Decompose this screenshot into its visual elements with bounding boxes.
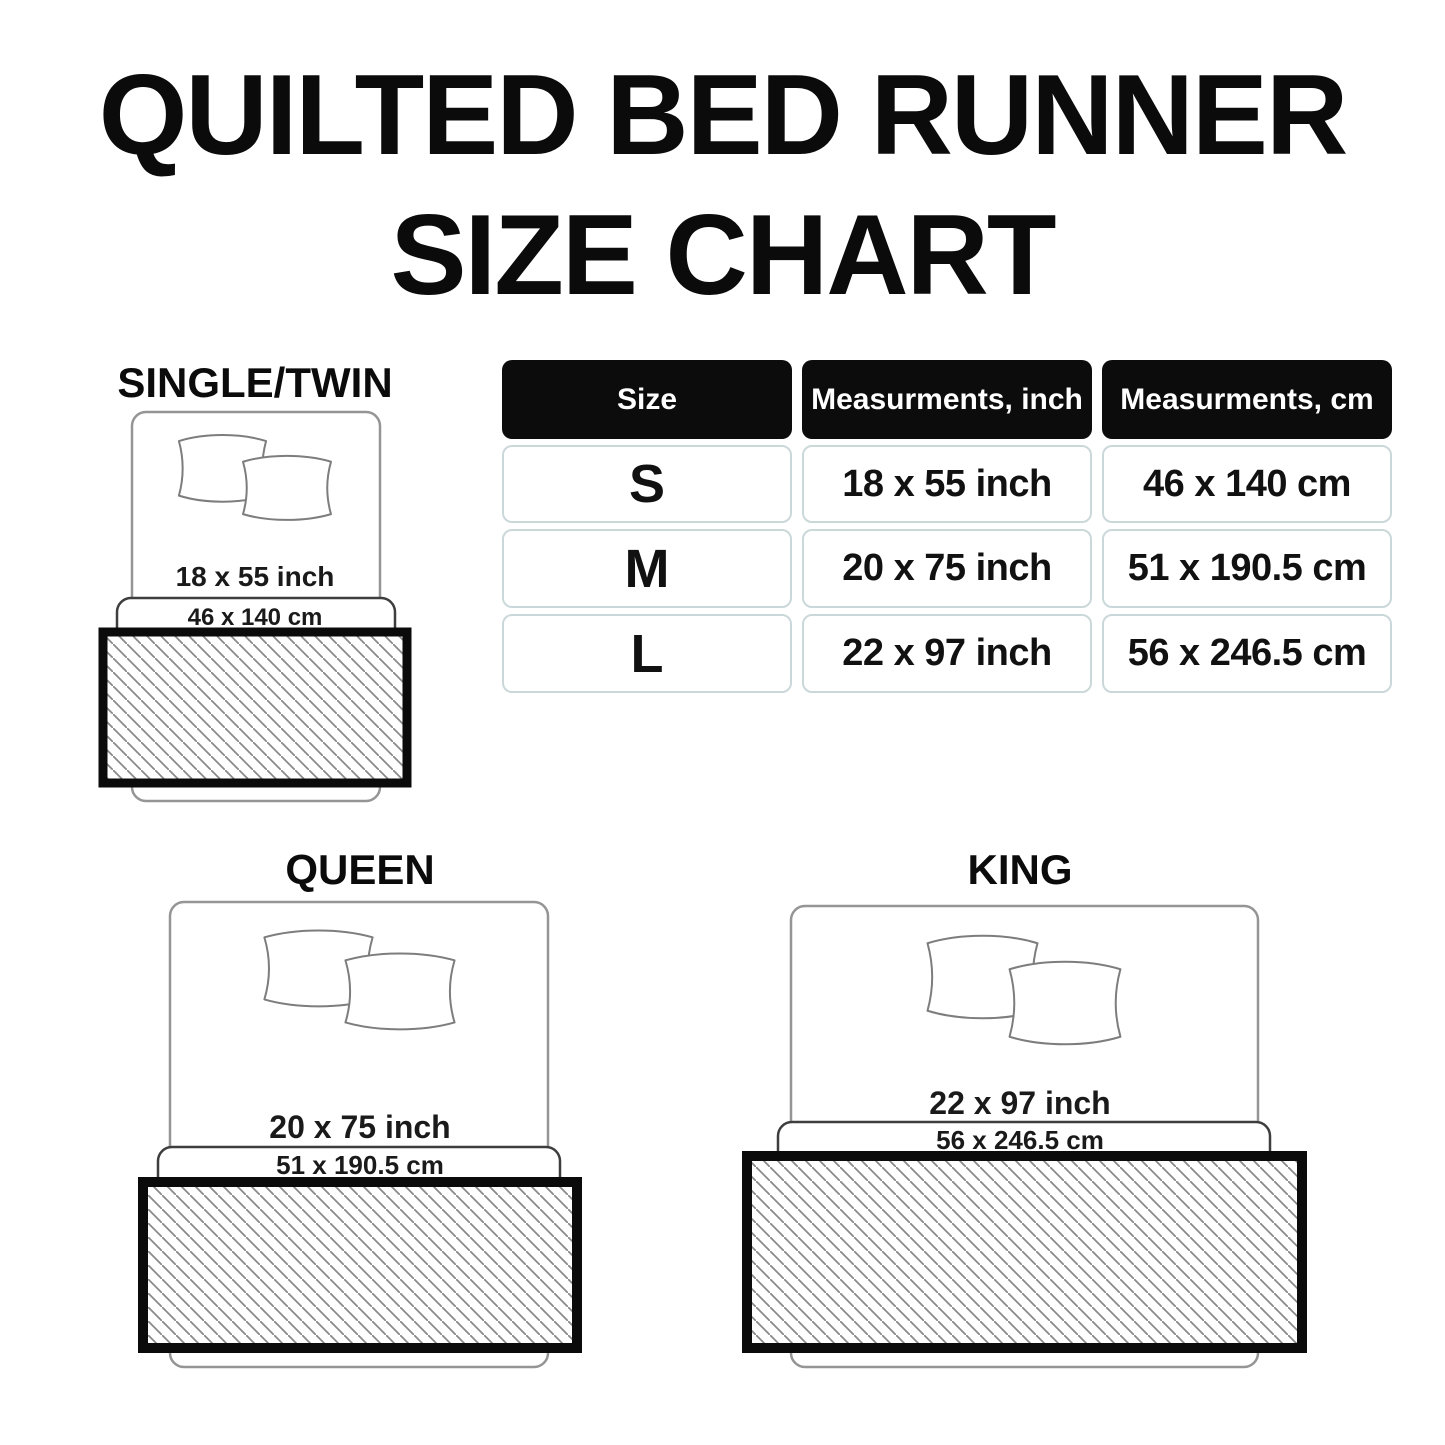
size-table: Size Measurments, inch Measurments, cm S…: [502, 360, 1392, 693]
table-cell-row2-inch: 20 x 75 inch: [802, 529, 1092, 608]
inch-dimension-label: 22 x 97 inch: [700, 1085, 1340, 1121]
cm-dimension-label: 51 x 190.5 cm: [120, 1150, 600, 1180]
diagram-label-single-twin: SINGLE/TWIN: [85, 361, 425, 405]
page-title: QUILTED BED RUNNER SIZE CHART: [0, 46, 1445, 326]
table-cell-row3-inch: 22 x 97 inch: [802, 614, 1092, 693]
runner-hatch-fill: [103, 632, 407, 783]
size-chart-page: QUILTED BED RUNNER SIZE CHART Size Measu…: [0, 0, 1445, 1445]
cm-dimension-label: 56 x 246.5 cm: [700, 1125, 1340, 1155]
bed-diagram-queen: QUEEN 20 x 75 inch 51 x 190.5 cm: [120, 845, 600, 1390]
bed-diagram-single-twin: SINGLE/TWIN 18 x 55 inch 46 x 140 cm: [85, 350, 425, 820]
table-cell-row3-size: L: [502, 614, 792, 693]
table-cell-row1-cm: 46 x 140 cm: [1102, 445, 1392, 523]
runner-hatch-fill: [747, 1156, 1302, 1348]
diagram-label-king: KING: [700, 848, 1340, 892]
table-cell-row2-size: M: [502, 529, 792, 608]
table-header-measurments-cm: Measurments, cm: [1102, 360, 1392, 439]
table-header-size: Size: [502, 360, 792, 439]
runner-hatch-fill: [143, 1182, 577, 1348]
pillow-icon: [345, 953, 454, 1029]
table-header-measurments-inch: Measurments, inch: [802, 360, 1092, 439]
pillow-icon: [1010, 962, 1121, 1045]
table-cell-row2-cm: 51 x 190.5 cm: [1102, 529, 1392, 608]
inch-dimension-label: 20 x 75 inch: [120, 1109, 600, 1145]
cm-dimension-label: 46 x 140 cm: [85, 605, 425, 631]
table-cell-row3-cm: 56 x 246.5 cm: [1102, 614, 1392, 693]
diagram-label-queen: QUEEN: [120, 848, 600, 892]
pillow-icon: [243, 456, 331, 520]
table-cell-row1-inch: 18 x 55 inch: [802, 445, 1092, 523]
table-cell-row1-size: S: [502, 445, 792, 523]
bed-diagram-king: KING 22 x 97 inch 56 x 246.5 cm: [700, 845, 1340, 1390]
page-title-line-1: QUILTED BED RUNNER: [0, 46, 1445, 186]
inch-dimension-label: 18 x 55 inch: [85, 562, 425, 592]
page-title-line-2: SIZE CHART: [0, 186, 1445, 326]
